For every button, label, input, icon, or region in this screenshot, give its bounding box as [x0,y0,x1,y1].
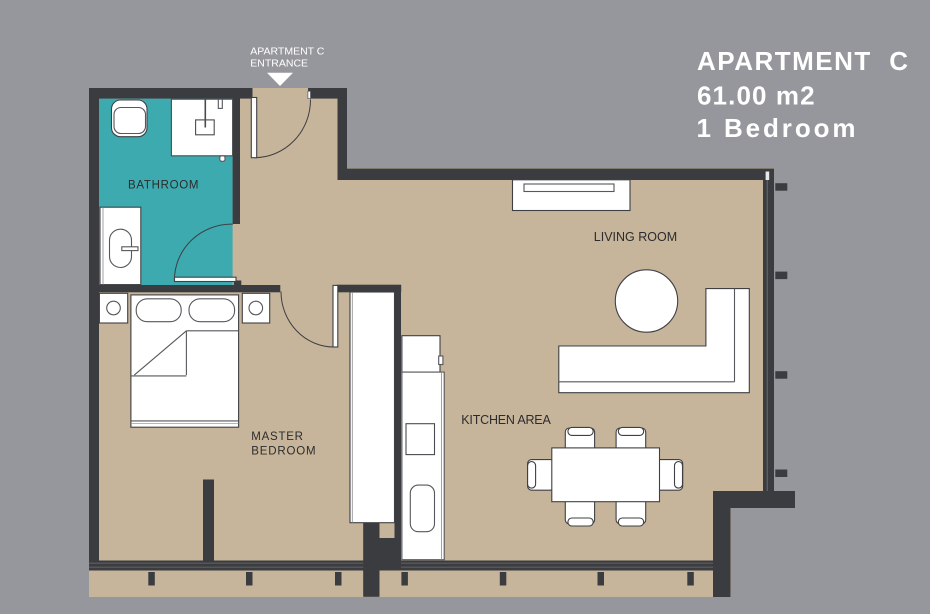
svg-text:61.00 m2: 61.00 m2 [697,81,816,111]
svg-text:LIVING ROOM: LIVING ROOM [594,230,677,244]
svg-text:MASTER: MASTER [251,431,303,443]
svg-text:ENTRANCE: ENTRANCE [250,57,308,69]
svg-text:1 Bedroom: 1 Bedroom [697,113,859,143]
svg-text:APARTMENT C: APARTMENT C [250,46,325,58]
svg-text:APARTMENT C: APARTMENT C [697,46,910,76]
svg-text:BATHROOM: BATHROOM [128,180,199,192]
svg-text:BEDROOM: BEDROOM [251,446,316,458]
svg-text:KITCHEN AREA: KITCHEN AREA [461,413,551,427]
